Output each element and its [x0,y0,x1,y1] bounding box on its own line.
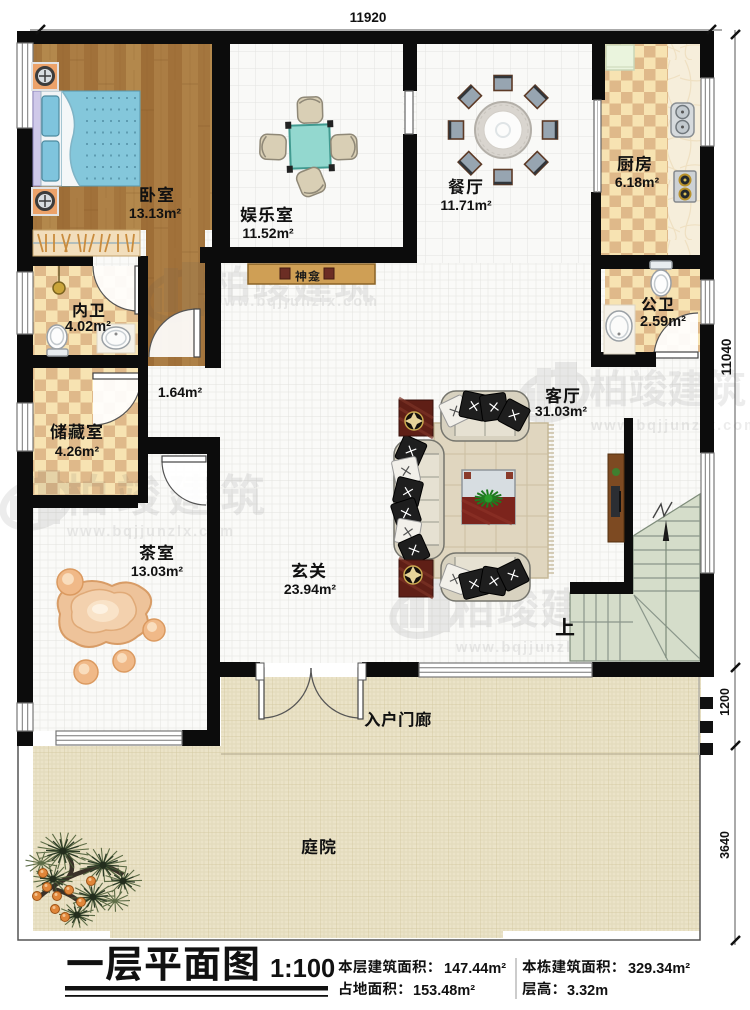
svg-text:153.48m²: 153.48m² [413,983,475,999]
svg-text:23.94m²: 23.94m² [284,581,336,597]
svg-text:147.44m²: 147.44m² [444,961,506,977]
svg-text:4.02m²: 4.02m² [65,319,111,335]
svg-text:13.13m²: 13.13m² [129,205,181,221]
svg-text:13.03m²: 13.03m² [131,563,183,579]
svg-text:11.71m²: 11.71m² [440,197,492,213]
svg-text:4.26m²: 4.26m² [55,443,100,459]
svg-text:31.03m²: 31.03m² [535,403,587,419]
svg-text:6.18m²: 6.18m² [615,174,660,190]
svg-text:329.34m²: 329.34m² [628,961,690,977]
svg-text:www.bqjjunzlx.com: www.bqjjunzlx.com [590,418,750,434]
svg-text:11920: 11920 [350,10,387,25]
svg-text:11040: 11040 [719,339,734,376]
svg-text:1:100: 1:100 [270,955,335,983]
svg-text:1.64m²: 1.64m² [158,384,203,400]
svg-text:3640: 3640 [718,831,732,859]
svg-text:11.52m²: 11.52m² [242,225,294,241]
svg-text:2.59m²: 2.59m² [640,314,686,330]
svg-text:3.32m: 3.32m [567,983,608,999]
svg-text:www.bqjjunzlx.com: www.bqjjunzlx.com [210,294,379,310]
svg-text:1200: 1200 [718,688,732,716]
